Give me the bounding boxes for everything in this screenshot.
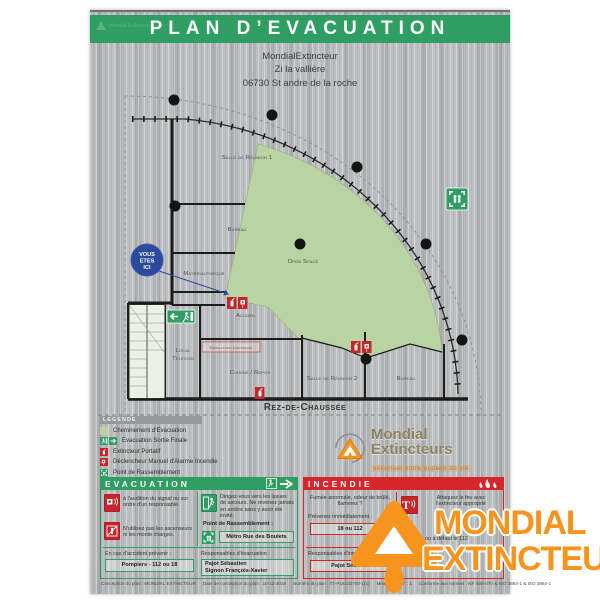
metal-plate: Mondial Extincteurs PLAN D’EVACUATION Mo… (90, 10, 510, 594)
final-exit-sign (167, 310, 195, 323)
legend-item: Evacuation Sortie Finale (100, 437, 332, 445)
smoke-alert-text: Fumée anormale, odeur de brûlé, flammes … (308, 495, 392, 508)
brand-triangle-icon (333, 432, 367, 470)
flames-icon (477, 478, 499, 489)
you-are-here-line2: ETES (140, 259, 155, 265)
legend-item-label: Point de Rassemblement (113, 470, 180, 476)
room-label-bureau-2: Bureau (396, 376, 415, 382)
footer-conception: Conception du plan : MONDIAL EXTINCTEUR (101, 581, 196, 586)
brand-name: Mondial Extincteurs (371, 427, 505, 457)
attack-fire-text: Attaquez le feu avec l'extincteur approp… (425, 495, 497, 508)
room-label-installation-electrique: Installation électrique (210, 345, 252, 351)
accident-value: Pompiers - 112 ou 18 (105, 559, 194, 572)
extinguisher-icon (351, 341, 361, 353)
page-title: PLAN D’EVACUATION (150, 18, 451, 40)
responsable-2: Signon François-Xavier (205, 568, 267, 575)
brand-tagline: sécuriser votre espace de vie (371, 465, 471, 472)
stairwell (129, 305, 165, 399)
legend-header: LEGENDE (100, 416, 202, 424)
divider (197, 492, 198, 546)
footer-maj: Mise à jour N° : 1 (377, 581, 412, 586)
manual-alarm-icon (238, 297, 248, 309)
room-label-open-space: Open Space (288, 259, 319, 265)
floor-label: Rez-de-Chaussée (264, 402, 347, 413)
you-are-here-marker: VOUS ETES ICI (131, 244, 228, 294)
incendie-panel: INCENDIE Fumée anormale, odeur de brûlé,… (303, 477, 504, 580)
legend-item-label: Evacuation Sortie Finale (122, 438, 187, 444)
alarm-signal-icon (104, 494, 120, 512)
evacuation-plan-screenshot: { "banner": { "title": "PLAN D’EVACUATIO… (0, 0, 600, 600)
responsables-evacuation-value: Pajot Sébastien Signon François-Xavier (201, 559, 294, 576)
prevent-value: 18 ou 112 (310, 523, 390, 535)
exit-door-icon (201, 494, 217, 512)
banner-watermark-logo: Mondial Extincteurs (96, 21, 153, 30)
responsables-evacuation-label: Responsables d'évacuation : (201, 551, 293, 557)
footer-normes: Conforme aux normes : NF X08-070 & ISO 3… (419, 581, 551, 586)
room-label-local-telecom-1: Local (175, 348, 191, 354)
room-label-local-telecom-2: Telecom (172, 356, 194, 362)
plan-footer: Conception du plan : MONDIAL EXTINCTEUR … (101, 581, 499, 586)
evacuation-path-swatch (100, 427, 108, 435)
evacuation-instruction: à l'audition du signal ou sur ordre d'un… (123, 496, 193, 509)
responsables-intervention-label: Responsables d'intervention : (308, 551, 394, 557)
address-line-1: MondialExtincteur (90, 50, 510, 63)
assembly-point-icon (446, 188, 468, 210)
legend-item-label: Cheminement d'Evacuation (113, 428, 186, 434)
divider (396, 492, 397, 576)
divider (103, 547, 295, 548)
running-man-icon (266, 478, 277, 489)
you-are-here-line3: ICI (143, 265, 151, 271)
you-are-here-line1: VOUS (139, 252, 155, 258)
assembly-point-icon (100, 469, 108, 477)
legend: LEGENDE Cheminement d'Evacuation Evacuat… (100, 416, 332, 477)
responsable-1: Pajot Sébastien (205, 561, 247, 568)
extinguisher-icon (227, 297, 237, 309)
phone-handset-icon (401, 532, 418, 550)
accident-label: En cas d'accident prévenir : (105, 551, 195, 557)
legend-item: Cheminement d'Evacuation (100, 427, 332, 435)
room-label-cuisine-repos: Cuisine / Repos (230, 370, 271, 376)
incendie-header: INCENDIE (303, 477, 504, 490)
floor-plan: Salle de Réunion 1 Bureau Matériauthèque… (90, 92, 510, 424)
phone-alert-icon: T (401, 496, 418, 514)
evacuation-header: EVACUATION (100, 477, 298, 490)
address-line-3: 06730 St andre de la roche (90, 77, 510, 90)
responsables-intervention-value: Pajot Sébastien (310, 560, 394, 572)
incendie-title: INCENDIE (308, 479, 373, 489)
evacuation-instruction: Dirigez-vous vers les issues de secours.… (220, 494, 294, 520)
evacuation-body: à l'audition du signal ou sur ordre d'un… (100, 490, 298, 579)
room-label-bureau-1: Bureau (227, 227, 246, 233)
final-exit-icon (100, 437, 117, 445)
footer-numero: Numéro du plan : TT-P16122700-1(1) (293, 581, 370, 586)
assembly-point-icon (202, 531, 215, 544)
extinguisher-icon (255, 387, 265, 399)
footer-date: Date de conception du plan : 10-12-2016 (203, 581, 286, 586)
room-label-salle-reunion-1: Salle de Réunion 1 (222, 155, 273, 161)
manual-alarm-icon (362, 341, 372, 353)
assembly-point-label: Point de Rassemblement : (203, 521, 273, 527)
evacuation-title: EVACUATION (105, 479, 190, 489)
brand-logo: Mondial Extincteurs sécuriser votre espa… (333, 425, 505, 477)
prevent-label: Prévenez immédiatement : (308, 514, 392, 520)
room-label-accueil: Accueil (236, 313, 257, 319)
manual-alarm-icon (100, 458, 108, 466)
legend-item-label: Extincteur Portatif (113, 449, 160, 455)
installation-electrique-label: Installation électrique (202, 342, 260, 352)
title-banner: Mondial Extincteurs PLAN D’EVACUATION (90, 15, 510, 43)
arrow-right-icon (280, 479, 293, 489)
brand-triangle-icon (96, 21, 106, 30)
room-label-materiautheque: Matériauthèque (183, 271, 224, 277)
svg-text:T: T (402, 498, 410, 512)
address-line-2: Zi la vallière (90, 63, 510, 76)
room-label-salle-reunion-2: Salle de Réunion 2 (307, 376, 358, 382)
legend-item: Déclencheur Manuel d'Alarme Incendie (100, 458, 332, 466)
divider (306, 547, 396, 548)
legend-item: Point de Rassemblement (100, 469, 332, 477)
extinguisher-icon (100, 448, 108, 456)
incendie-body: Fumée anormale, odeur de brûlé, flammes … (303, 490, 504, 579)
site-address: MondialExtincteur Zi la vallière 06730 S… (90, 50, 510, 90)
legend-item-label: Déclencheur Manuel d'Alarme Incendie (113, 459, 218, 465)
banner-watermark-text: Mondial Extincteurs (109, 23, 153, 29)
no-elevator-icon (104, 522, 120, 540)
evacuation-instruction: N'utilisez pas les ascenseurs ni les mon… (123, 526, 193, 539)
evacuation-panel: EVACUATION à l'audition du signal ou sur… (100, 477, 298, 580)
fallback-text: ou à défaut le 112 (425, 536, 497, 542)
assembly-point-value: Métro Rue des Boulets (219, 531, 294, 543)
legend-item: Extincteur Portatif (100, 448, 332, 456)
